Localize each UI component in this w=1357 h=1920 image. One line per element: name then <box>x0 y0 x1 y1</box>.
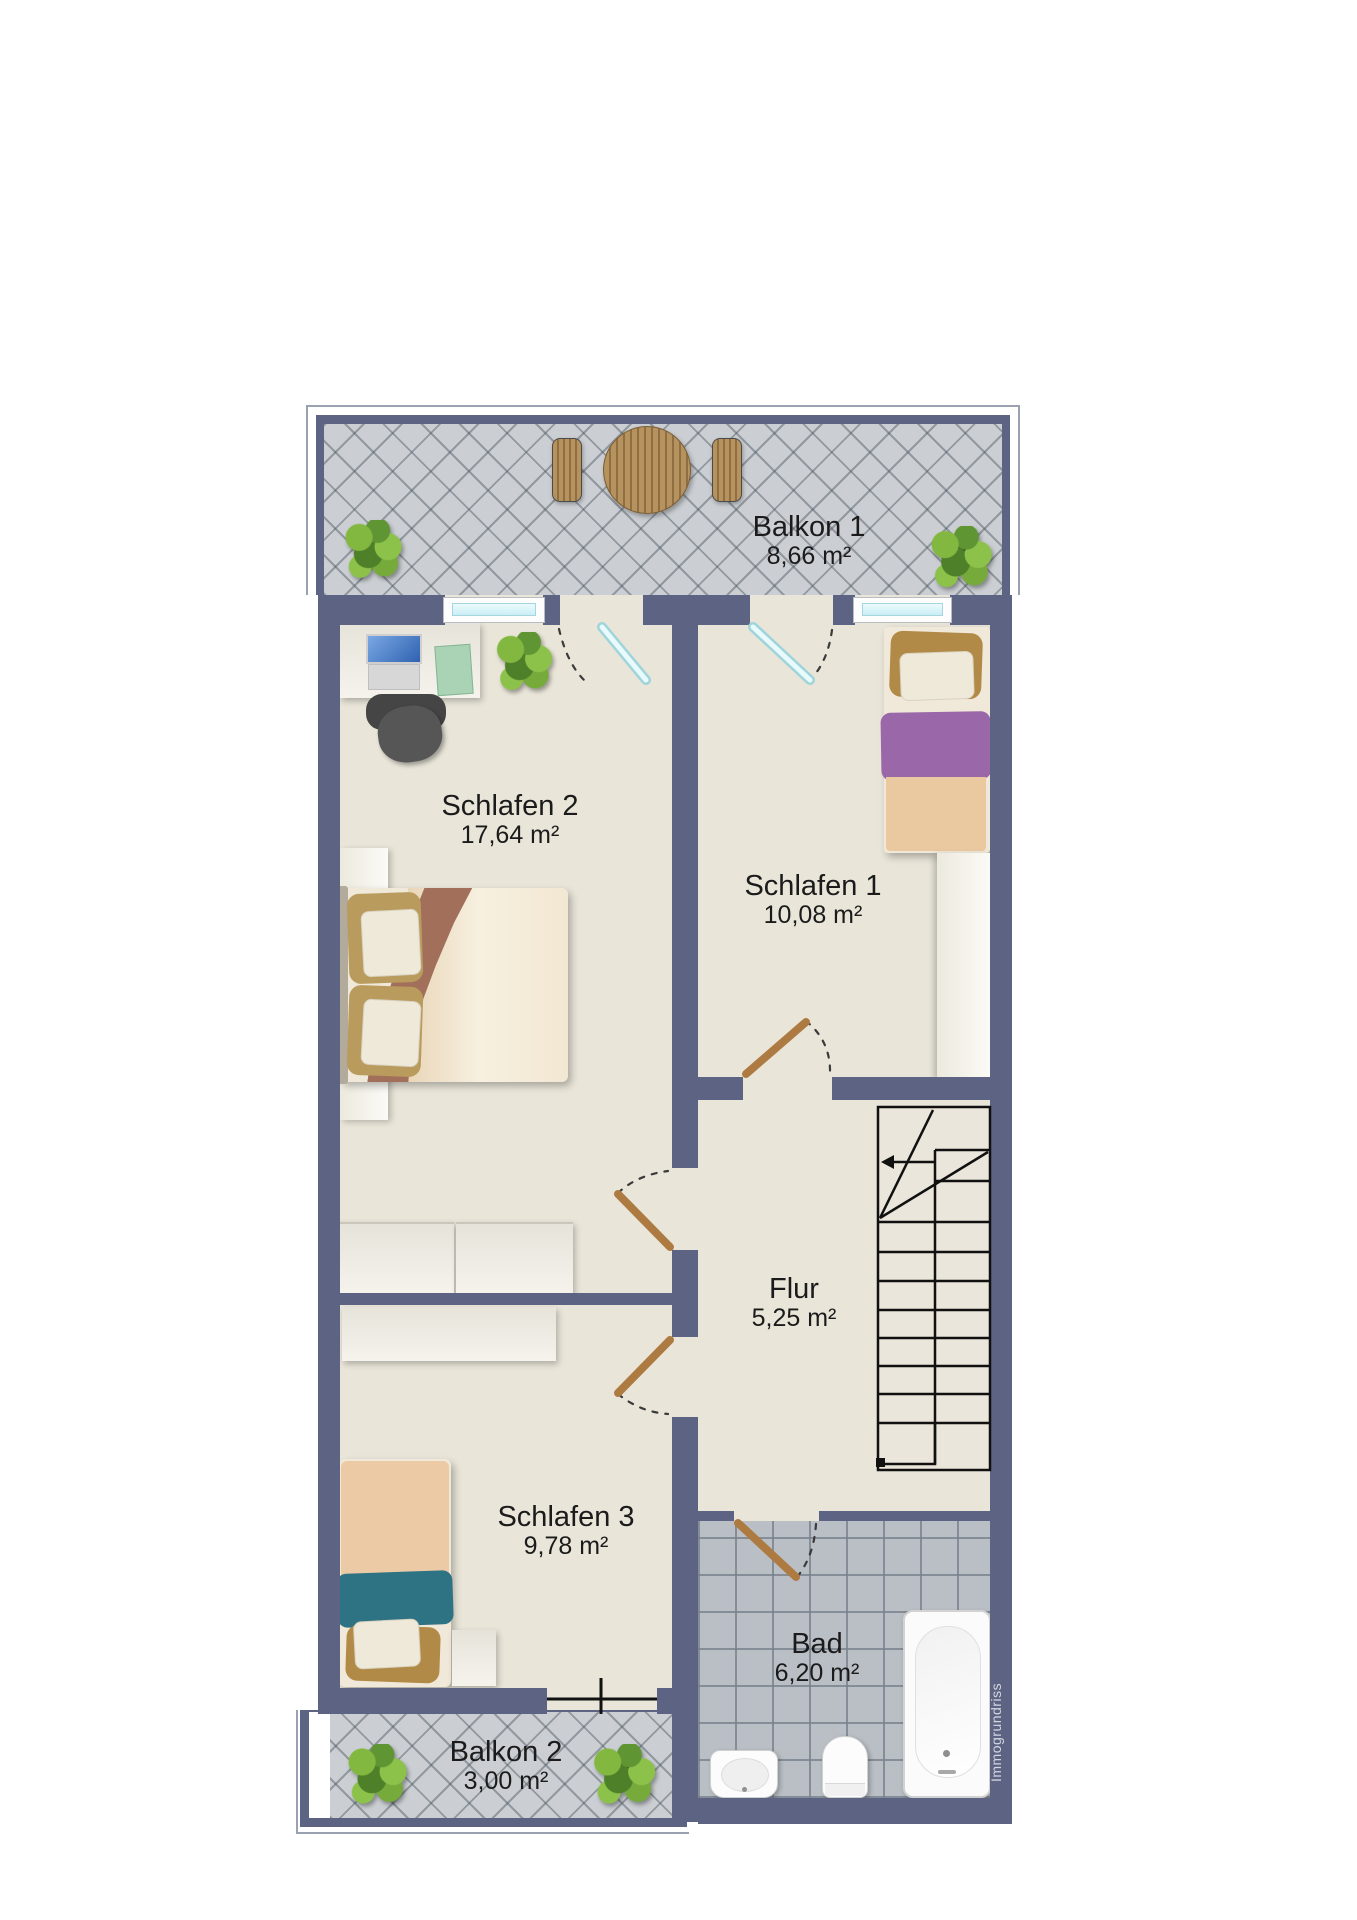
room-area: 10,08 m² <box>713 901 913 929</box>
dresser <box>456 1222 573 1295</box>
plant-leaves <box>496 632 552 690</box>
sink <box>710 1750 778 1798</box>
window <box>853 597 952 623</box>
bed-sheet <box>886 777 986 851</box>
wardrobe <box>937 853 990 1077</box>
window-glass <box>452 603 536 616</box>
wall-segment <box>672 595 698 1168</box>
sideboard <box>342 1307 556 1361</box>
room-label-schlafen1: Schlafen 1 10,08 m² <box>713 871 913 929</box>
bed-pillow <box>360 909 421 978</box>
laptop <box>366 634 422 692</box>
potted-plant <box>346 1744 408 1804</box>
potted-plant <box>344 520 402 578</box>
toilet-cistern <box>825 1783 865 1796</box>
green-folder <box>434 644 473 696</box>
room-area: 9,78 m² <box>466 1532 666 1560</box>
laptop-keyboard <box>368 664 420 690</box>
dresser <box>336 1222 454 1295</box>
wall-segment <box>318 1688 547 1714</box>
double-bed <box>340 888 568 1082</box>
room-label-balkon1: Balkon 1 8,66 m² <box>709 512 909 570</box>
room-area: 6,20 m² <box>717 1659 917 1687</box>
room-label-flur: Flur 5,25 m² <box>694 1274 894 1332</box>
laptop-screen <box>366 634 422 664</box>
wall-segment <box>340 1293 672 1305</box>
wall-segment <box>657 1688 672 1714</box>
wall-segment <box>698 1077 743 1100</box>
office-chair <box>366 694 446 764</box>
room-name: Schlafen 3 <box>466 1502 666 1532</box>
window <box>443 597 545 623</box>
plant-leaves <box>928 526 994 588</box>
room-label-bad: Bad 6,20 m² <box>717 1629 917 1687</box>
room-area: 3,00 m² <box>406 1767 606 1795</box>
bed-blanket-purple <box>880 711 991 781</box>
room-label-schlafen2: Schlafen 2 17,64 m² <box>410 791 610 849</box>
watermark-text: Immogrundriss <box>988 1678 1014 1782</box>
bathtub-drain <box>943 1750 950 1757</box>
wall-segment <box>832 1077 990 1100</box>
garden-chair-right <box>712 438 742 502</box>
balcony2-railing-gap <box>309 1712 330 1818</box>
room-name: Schlafen 2 <box>410 791 610 821</box>
single-bed <box>884 627 990 853</box>
wall-exterior-right <box>990 595 1012 1822</box>
room-name: Flur <box>694 1274 894 1304</box>
room-label-schlafen3: Schlafen 3 9,78 m² <box>466 1502 666 1560</box>
bed-sheet <box>341 1461 449 1577</box>
room-area: 17,64 m² <box>410 821 610 849</box>
room-name: Balkon 2 <box>406 1737 606 1767</box>
nightstand <box>452 1630 496 1686</box>
potted-plant <box>496 632 552 690</box>
room-area: 8,66 m² <box>709 542 909 570</box>
wall-segment <box>543 595 560 625</box>
sink-drain <box>742 1787 747 1792</box>
room-label-balkon2: Balkon 2 3,00 m² <box>406 1737 606 1795</box>
room-name: Bad <box>717 1629 917 1659</box>
bed-pillow <box>360 999 421 1068</box>
wall-segment <box>833 595 855 625</box>
plant-leaves <box>346 1744 408 1804</box>
single-bed <box>339 1459 451 1687</box>
room-area: 5,25 m² <box>694 1304 894 1332</box>
garden-table <box>603 426 691 514</box>
garden-chair-left <box>552 438 582 502</box>
wall-segment <box>698 1798 1012 1824</box>
room-name: Schlafen 1 <box>713 871 913 901</box>
bed-pillow <box>353 1618 421 1669</box>
wall-segment <box>819 1511 990 1521</box>
wall-exterior-left <box>318 595 340 1712</box>
potted-plant <box>928 526 994 588</box>
floor-plan-page: Balkon 1 8,66 m² Schlafen 2 17,64 m² Sch… <box>0 0 1357 1920</box>
bathtub-overflow <box>938 1770 956 1774</box>
bed-pillow <box>899 651 975 702</box>
wall-segment <box>698 1511 734 1521</box>
wall-segment <box>672 1417 698 1822</box>
plant-leaves <box>344 520 402 578</box>
room-name: Balkon 1 <box>709 512 909 542</box>
toilet <box>822 1736 868 1798</box>
window-glass <box>862 603 943 616</box>
